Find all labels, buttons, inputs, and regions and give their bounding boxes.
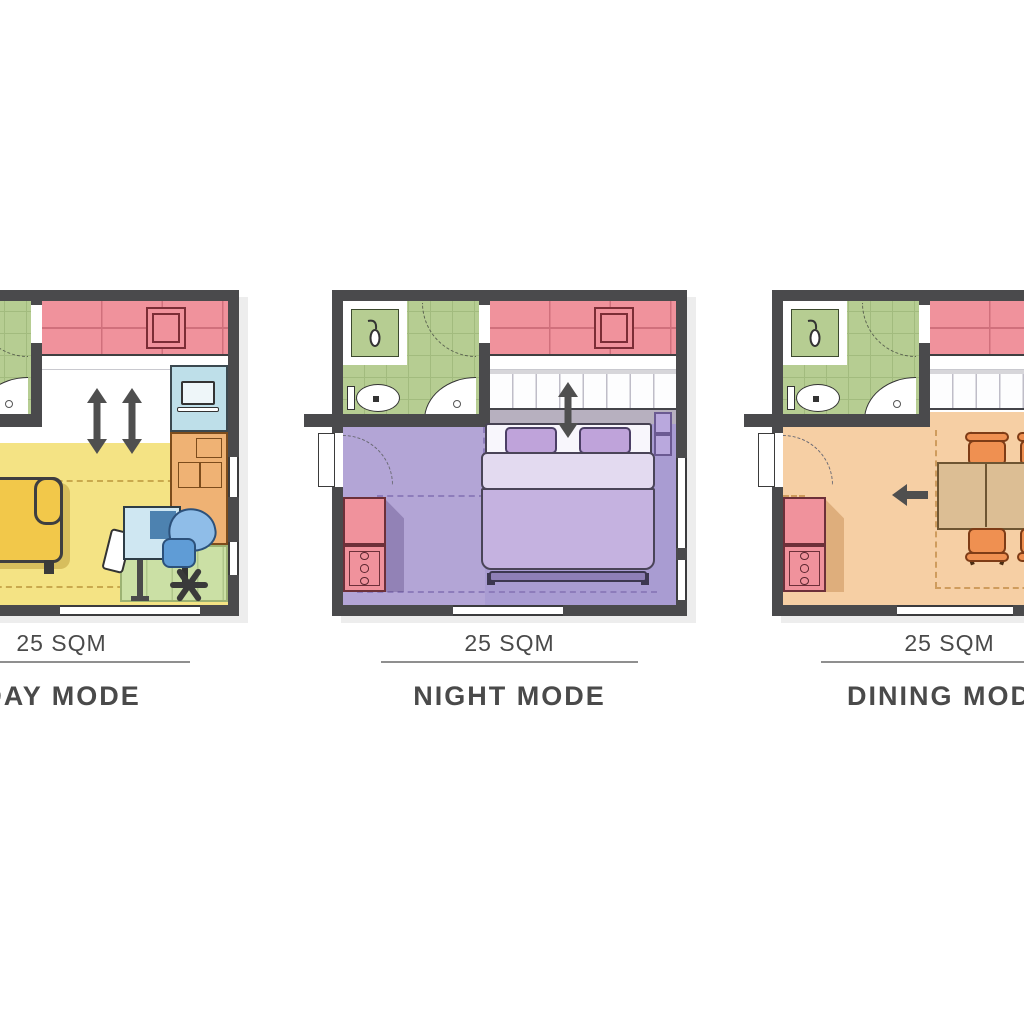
cabinet-door bbox=[200, 462, 222, 488]
shower-pan bbox=[791, 309, 839, 357]
pillow-right bbox=[579, 427, 631, 454]
chair-back bbox=[1017, 552, 1024, 562]
burner-icon bbox=[800, 564, 809, 572]
bathroom-wall bbox=[0, 414, 42, 427]
laptop-icon bbox=[181, 381, 215, 405]
counter-shelf-strip bbox=[490, 356, 676, 370]
kitchen-sink bbox=[594, 307, 634, 349]
cabinet-door bbox=[178, 462, 200, 488]
chair-seat bbox=[1020, 528, 1024, 554]
chair-seat bbox=[968, 528, 1006, 554]
bed-sheet-fold bbox=[481, 452, 655, 490]
pillow-left bbox=[505, 427, 557, 454]
double-vertical-arrow-icon bbox=[87, 388, 107, 454]
bed-blanket bbox=[481, 488, 655, 570]
laptop-base bbox=[177, 407, 219, 412]
office-chair-seat bbox=[162, 538, 196, 568]
sofa-armrest bbox=[34, 477, 63, 525]
mode-label-dining: DINING MODE bbox=[772, 681, 1024, 712]
arrow-head-left bbox=[892, 484, 907, 506]
wardrobe-cabinet-strip bbox=[490, 370, 676, 410]
left-arrow-icon bbox=[892, 484, 928, 506]
area-label-day: 25 SQM bbox=[0, 630, 239, 657]
kitchen-counter bbox=[490, 301, 676, 356]
shower-stall bbox=[343, 301, 407, 365]
bathroom-door-opening bbox=[479, 305, 490, 343]
bed-footer-bar bbox=[489, 571, 647, 582]
toilet-bowl bbox=[796, 384, 840, 412]
shower-head-icon bbox=[364, 318, 386, 348]
window-right bbox=[676, 560, 687, 600]
mode-label-day: DAY MODE bbox=[0, 681, 239, 712]
floorplan-night-mode bbox=[332, 290, 687, 616]
bathroom-door-opening bbox=[31, 305, 42, 343]
area-label-night: 25 SQM bbox=[332, 630, 687, 657]
kitchen-counter bbox=[42, 301, 228, 356]
entry-door-leaf bbox=[758, 433, 775, 487]
bathroom-wall bbox=[744, 414, 930, 427]
shower-head-icon bbox=[804, 318, 826, 348]
entry-door-leaf bbox=[318, 433, 335, 487]
extendable-dining-table bbox=[937, 462, 1024, 530]
double-vertical-arrow-icon bbox=[558, 382, 578, 438]
window-bottom bbox=[60, 605, 200, 616]
bathroom-door-opening bbox=[919, 305, 930, 343]
toilet-flush-button bbox=[373, 396, 379, 402]
window-right bbox=[228, 542, 239, 575]
cooktop-with-burners bbox=[343, 545, 386, 592]
bedside-shelf bbox=[654, 412, 672, 434]
sink-drain-icon bbox=[5, 400, 13, 408]
toilet bbox=[787, 384, 841, 412]
dashed-zone-line bbox=[377, 495, 485, 497]
cooktop-panel bbox=[349, 551, 380, 586]
dining-chair bbox=[965, 432, 1009, 466]
caption-divider bbox=[0, 661, 190, 663]
sofa-leg bbox=[44, 560, 54, 574]
floorplan-day-mode bbox=[0, 290, 239, 616]
burner-icon bbox=[800, 552, 809, 560]
area-label-dining: 25 SQM bbox=[772, 630, 1024, 657]
toilet-tank bbox=[347, 386, 355, 410]
arrow-shaft bbox=[94, 401, 101, 441]
desk-leg bbox=[137, 558, 143, 600]
window-right bbox=[228, 457, 239, 497]
burner-icon bbox=[800, 577, 809, 585]
wall-desk bbox=[170, 365, 228, 432]
toilet-bowl bbox=[356, 384, 400, 412]
arrow-shaft bbox=[906, 491, 928, 499]
caption-divider bbox=[821, 661, 1024, 663]
murphy-bed-shadow bbox=[490, 410, 676, 424]
burner-icon bbox=[360, 552, 369, 560]
mode-label-night: NIGHT MODE bbox=[332, 681, 687, 712]
counter-shelf-strip bbox=[930, 356, 1024, 370]
window-bottom bbox=[453, 605, 563, 616]
burner-icon bbox=[360, 577, 369, 585]
sink-drain-icon bbox=[453, 400, 461, 408]
arrow-head-down bbox=[122, 439, 142, 454]
arrow-head-down bbox=[558, 423, 578, 438]
arrow-shaft bbox=[129, 401, 136, 441]
stove-counter bbox=[343, 497, 386, 545]
chair-back bbox=[965, 552, 1009, 562]
sink-drain-icon bbox=[893, 400, 901, 408]
shower-stall bbox=[783, 301, 847, 365]
shower-pan bbox=[351, 309, 399, 357]
cabinet-door bbox=[196, 438, 222, 458]
window-bottom bbox=[897, 605, 1013, 616]
toilet bbox=[347, 384, 401, 412]
window-right bbox=[676, 458, 687, 548]
dining-chair bbox=[1017, 528, 1024, 564]
dining-chair bbox=[1017, 432, 1024, 466]
stove-counter bbox=[783, 497, 826, 545]
dashed-zone-line bbox=[935, 587, 1024, 589]
table-leaf-seam bbox=[985, 464, 987, 527]
double-vertical-arrow-icon bbox=[122, 388, 142, 454]
kitchen-sink bbox=[146, 307, 186, 349]
arrow-shaft bbox=[565, 395, 572, 425]
cooktop-panel bbox=[789, 551, 820, 586]
caption-divider bbox=[381, 661, 638, 663]
wardrobe-cabinet-strip bbox=[930, 370, 1024, 410]
bathroom-door-swing-arc bbox=[0, 303, 28, 357]
toilet-flush-button bbox=[813, 396, 819, 402]
toilet-tank bbox=[787, 386, 795, 410]
kitchen-counter bbox=[930, 301, 1024, 356]
desk-foot bbox=[131, 596, 149, 601]
dining-chair bbox=[965, 528, 1009, 564]
cooktop-with-burners bbox=[783, 545, 826, 592]
floorplan-dining-mode bbox=[772, 290, 1024, 616]
arrow-head-down bbox=[87, 439, 107, 454]
bedside-shelf bbox=[654, 434, 672, 456]
burner-icon bbox=[360, 564, 369, 572]
bathroom-wall bbox=[304, 414, 490, 427]
